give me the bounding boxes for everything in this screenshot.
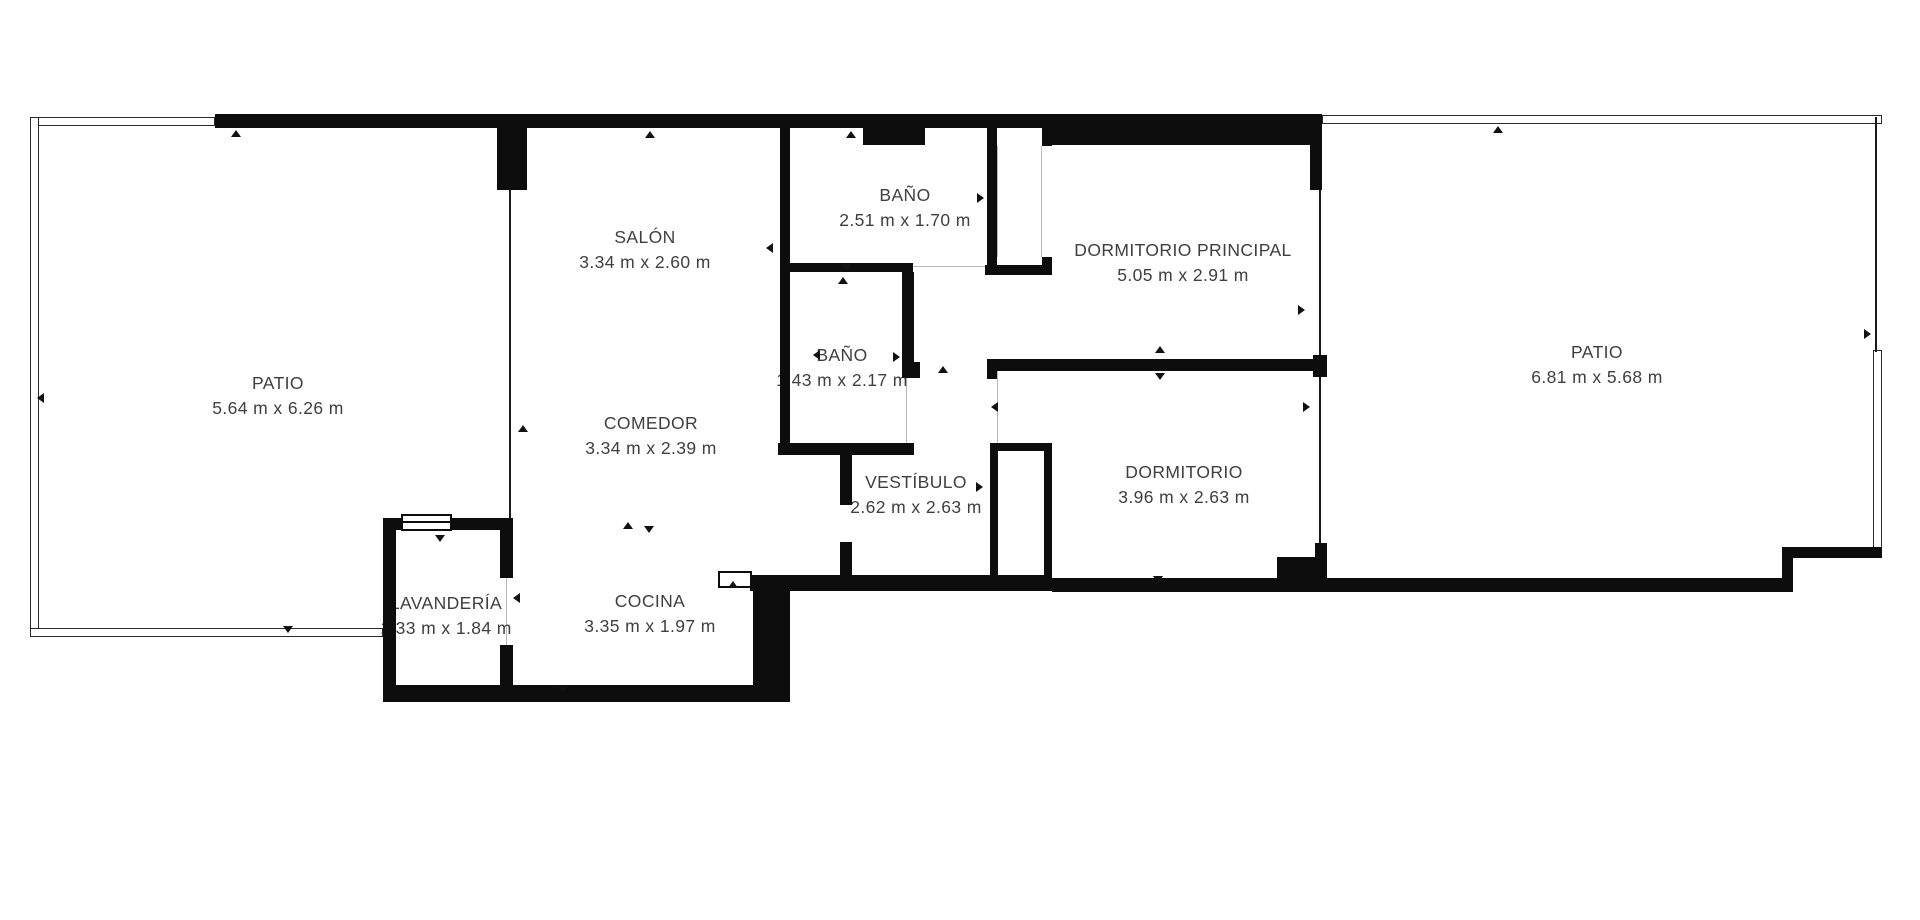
patio-right-edge-line xyxy=(1875,117,1877,352)
direction-marker-icon xyxy=(1155,373,1165,380)
direction-marker-icon xyxy=(977,193,984,203)
direction-marker-icon xyxy=(976,482,983,492)
patio-left-bottom-window-wall xyxy=(30,628,383,637)
salon-patio-glass-line xyxy=(509,188,511,518)
direction-marker-icon xyxy=(846,131,856,138)
room-label-dormitorio: DORMITORIO 3.96 m x 2.63 m xyxy=(1074,460,1294,510)
wall-bano2-door-block xyxy=(902,362,920,378)
room-dimensions: 2.51 m x 1.70 m xyxy=(795,208,1015,233)
room-name: LAVANDERÍA xyxy=(336,591,556,616)
room-label-lavanderia: LAVANDERÍA 1.33 m x 1.84 m xyxy=(336,591,556,641)
wall-top-main xyxy=(215,114,1052,128)
room-label-cocina: COCINA 3.35 m x 1.97 m xyxy=(540,589,760,639)
direction-marker-icon xyxy=(838,277,848,284)
wardrobe-icon xyxy=(990,443,1052,583)
room-dimensions: 3.35 m x 1.97 m xyxy=(540,614,760,639)
direction-marker-icon xyxy=(518,425,528,432)
wall-step-block xyxy=(1277,557,1327,580)
direction-marker-icon xyxy=(558,686,568,693)
room-dimensions: 1.33 m x 1.84 m xyxy=(336,616,556,641)
wall-divider-jamb xyxy=(987,359,997,379)
wall-block-hall xyxy=(1042,257,1052,275)
direction-marker-icon xyxy=(728,581,738,588)
wall-bottom-right xyxy=(1052,578,1793,592)
dormp-door-opening-b xyxy=(1041,146,1042,257)
bano1-door-opening xyxy=(913,266,985,267)
direction-marker-icon xyxy=(513,593,520,603)
room-dimensions: 3.34 m x 2.39 m xyxy=(541,436,761,461)
wall-shaft-block xyxy=(863,128,925,145)
room-label-patio-right: PATIO 6.81 m x 5.68 m xyxy=(1487,340,1707,390)
room-name: DORMITORIO xyxy=(1074,460,1294,485)
wall-lavanderia-left xyxy=(383,518,396,702)
room-dimensions: 5.64 m x 6.26 m xyxy=(168,396,388,421)
lavanderia-window-midline xyxy=(403,521,450,523)
direction-marker-icon xyxy=(1298,305,1305,315)
direction-marker-icon xyxy=(893,352,900,362)
wall-top-right xyxy=(1052,114,1322,145)
wall-bano1-right xyxy=(987,128,997,272)
wall-top-right-stub xyxy=(1310,145,1322,190)
room-label-dormitorio-principal: DORMITORIO PRINCIPAL 5.05 m x 2.91 m xyxy=(1053,238,1313,288)
direction-marker-icon xyxy=(1303,402,1310,412)
patio-left-side-window-wall xyxy=(30,117,39,637)
direction-marker-icon xyxy=(813,350,820,360)
direction-marker-icon xyxy=(283,626,293,633)
room-name: PATIO xyxy=(1487,340,1707,365)
room-label-comedor: COMEDOR 3.34 m x 2.39 m xyxy=(541,411,761,461)
wall-lavanderia-right-b xyxy=(500,645,513,687)
room-name: COMEDOR xyxy=(541,411,761,436)
wall-kitchen-bottom xyxy=(383,685,790,702)
direction-marker-icon xyxy=(938,366,948,373)
wall-dormp-left-stub xyxy=(1042,128,1052,146)
patio-right-side-window-wall xyxy=(1873,350,1882,548)
room-label-salon: SALÓN 3.34 m x 2.60 m xyxy=(535,225,755,275)
room-name: PATIO xyxy=(168,371,388,396)
wall-bano2-bottom xyxy=(778,443,914,455)
wall-dorm-divider xyxy=(987,359,1313,371)
direction-marker-icon xyxy=(37,393,44,403)
room-dimensions: 5.05 m x 2.91 m xyxy=(1053,263,1313,288)
direction-marker-icon xyxy=(1493,126,1503,133)
room-label-bano-1: BAÑO 2.51 m x 1.70 m xyxy=(795,183,1015,233)
room-name: SALÓN xyxy=(535,225,755,250)
patio-right-top-window-wall xyxy=(1322,115,1882,124)
direction-marker-icon xyxy=(991,402,998,412)
wall-patio-bottom-bar xyxy=(1782,547,1882,558)
room-dimensions: 6.81 m x 5.68 m xyxy=(1487,365,1707,390)
direction-marker-icon xyxy=(623,522,633,529)
room-dimensions: 3.96 m x 2.63 m xyxy=(1074,485,1294,510)
wall-salon-banos xyxy=(780,128,790,455)
room-label-patio-left: PATIO 5.64 m x 6.26 m xyxy=(168,371,388,421)
wall-vestibulo-left-a xyxy=(840,455,852,505)
floor-plan: PATIO 5.64 m x 6.26 m SALÓN 3.34 m x 2.6… xyxy=(0,0,1920,920)
direction-marker-icon xyxy=(1864,329,1871,339)
direction-marker-icon xyxy=(645,131,655,138)
patio-left-top-window-wall xyxy=(30,117,215,126)
direction-marker-icon xyxy=(644,526,654,533)
wall-step-block-small xyxy=(1315,543,1327,559)
room-name: COCINA xyxy=(540,589,760,614)
wall-lavanderia-right-a xyxy=(500,518,513,578)
room-dimensions: 3.34 m x 2.60 m xyxy=(535,250,755,275)
direction-marker-icon xyxy=(435,535,445,542)
direction-marker-icon xyxy=(1153,576,1163,583)
room-name: DORMITORIO PRINCIPAL xyxy=(1053,238,1313,263)
direction-marker-icon xyxy=(1155,346,1165,353)
wall-salon-stub xyxy=(497,128,527,190)
wall-patio-step xyxy=(1782,547,1793,592)
wall-divider-end-block xyxy=(1313,355,1327,377)
direction-marker-icon xyxy=(766,243,773,253)
direction-marker-icon xyxy=(231,130,241,137)
direction-marker-icon xyxy=(841,264,851,271)
